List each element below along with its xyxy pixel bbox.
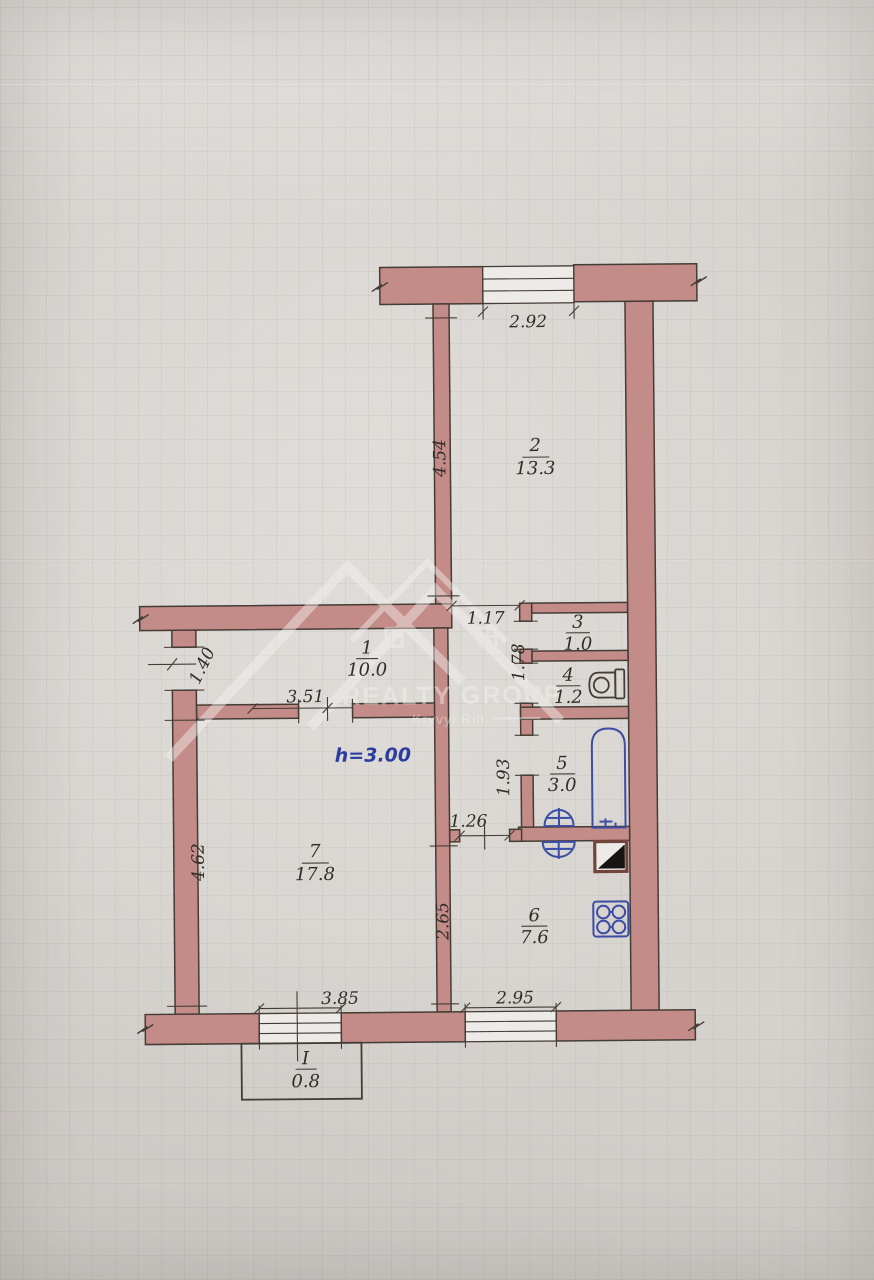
room-6-area: 7.6 [520, 927, 549, 948]
wall-bath-bottom [519, 826, 630, 841]
scanned-floor-plan-photo: REALTY GROUP Kryvyi Rih [0, 0, 874, 1280]
stove-icon [593, 901, 628, 936]
dim-kitchen-door: 1.26 [449, 812, 487, 832]
room-6-number: 6 [529, 905, 541, 926]
room-7-area: 17.8 [295, 864, 335, 885]
ventilation-shaft-icon [595, 841, 627, 871]
dim-closet-wall: 1.78 [509, 643, 529, 681]
dim-bath-wall: 1.93 [494, 758, 514, 796]
room-7-number: 7 [309, 841, 321, 862]
wall-closet-column [521, 775, 533, 831]
dim-kitchen-window: 2.95 [495, 988, 534, 1008]
wall-right [625, 301, 659, 1010]
dim-room2-wall: 4.54 [430, 439, 450, 478]
dim-top-window: 2.92 [508, 312, 547, 332]
wall-entrance-stub [172, 630, 196, 647]
window-room7-icon [259, 1013, 341, 1044]
wall-bottom-c [556, 1010, 695, 1041]
wall-top-right [574, 264, 697, 302]
room-4-number: 4 [561, 665, 574, 686]
wall-bottom-a [145, 1014, 259, 1045]
balcony-area: 0.8 [291, 1071, 320, 1092]
kitchen-sink-icon [543, 842, 575, 859]
room-2-area: 13.3 [515, 458, 555, 479]
wall-closet-column [520, 603, 532, 621]
room-3-area: 1.0 [564, 634, 593, 655]
toilet-icon [589, 669, 624, 698]
window-top-icon [483, 266, 574, 304]
room-1-number: 1 [361, 638, 373, 659]
bathtub-icon [592, 728, 626, 827]
floor-plan-drawing: REALTY GROUP Kryvyi Rih [0, 0, 874, 1280]
walls [137, 264, 704, 1045]
wall-kitchen-door-stub [510, 829, 522, 841]
dim-kitchen-wall: 2.65 [433, 902, 453, 941]
dim-room1-wall: 3.51 [286, 687, 324, 707]
bath-sink-icon [544, 808, 573, 826]
balcony-number: I [301, 1048, 310, 1069]
wall-bottom-b [341, 1012, 465, 1043]
dim-entrance: 1.40 [185, 644, 219, 687]
room-2-number: 2 [528, 435, 541, 456]
watermark-city: Kryvyi Rih [412, 711, 485, 728]
watermark-brand: REALTY GROUP [342, 681, 563, 711]
dim-passage: 1.17 [467, 608, 505, 628]
room-3-number: 3 [572, 612, 584, 633]
window-kitchen-icon [465, 1011, 556, 1042]
room-1-area: 10.0 [347, 659, 387, 680]
room-5-area: 3.0 [548, 775, 577, 796]
room-5-number: 5 [556, 753, 568, 774]
room-4-area: 1.2 [554, 687, 583, 708]
dim-room7-window: 3.85 [321, 989, 359, 1009]
wall-top-left [380, 267, 483, 305]
ceiling-height-label: h=3.00 [335, 744, 412, 767]
dim-room7-wall: 4.62 [189, 843, 209, 882]
